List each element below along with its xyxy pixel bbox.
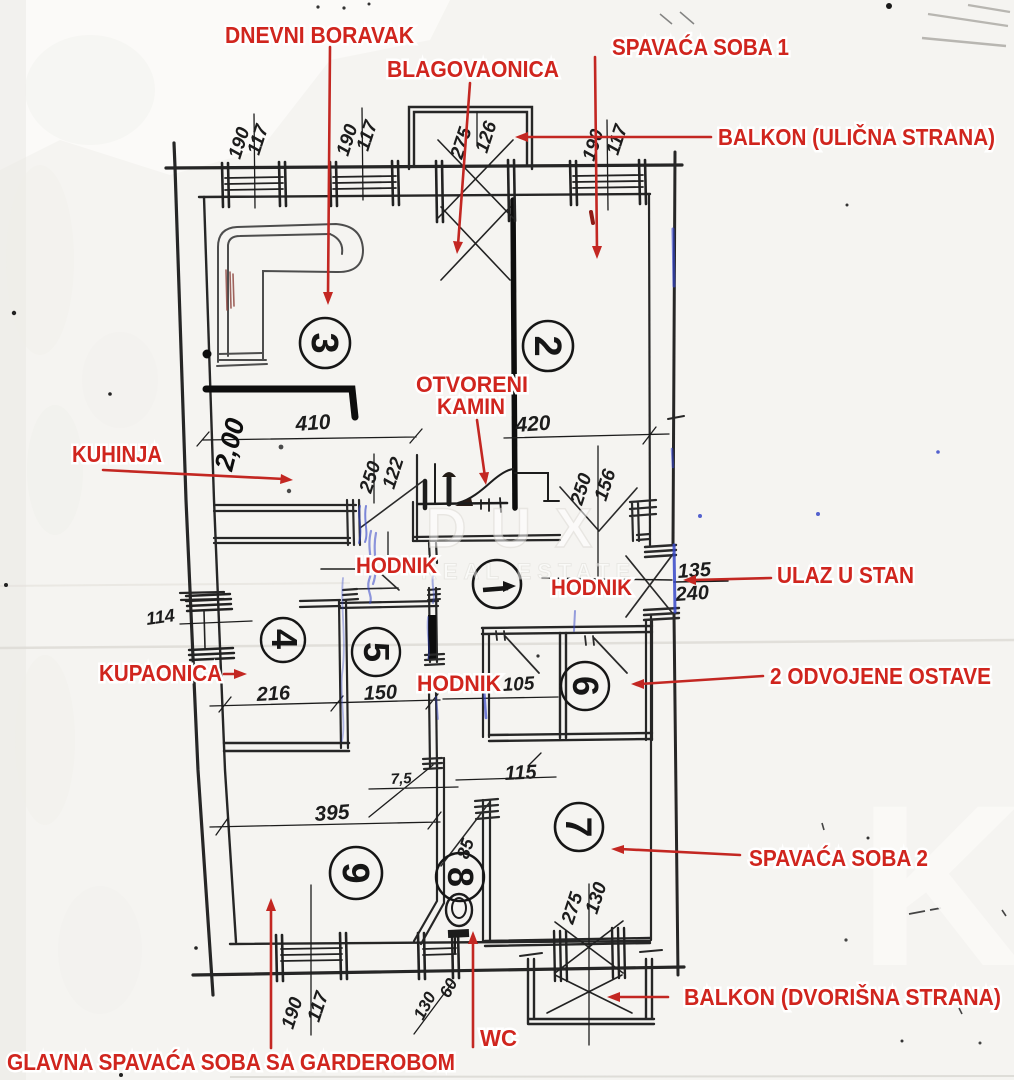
svg-text:9: 9 (334, 862, 376, 883)
svg-text:395: 395 (314, 801, 351, 826)
svg-text:ULAZ U STAN: ULAZ U STAN (777, 562, 914, 588)
svg-text:KAMIN: KAMIN (437, 394, 505, 419)
svg-text:105: 105 (502, 673, 535, 696)
svg-text:SPAVAĆA SOBA 1: SPAVAĆA SOBA 1 (612, 33, 789, 60)
svg-text:240: 240 (674, 582, 710, 606)
svg-text:DUX: DUX (426, 496, 616, 559)
svg-text:K: K (858, 757, 1014, 1014)
svg-text:5: 5 (356, 642, 397, 662)
svg-text:BALKON (ULIČNA STRANA): BALKON (ULIČNA STRANA) (718, 123, 995, 150)
svg-text:HODNIK: HODNIK (417, 671, 501, 696)
svg-text:HODNIK: HODNIK (356, 553, 437, 578)
svg-text:6: 6 (565, 676, 606, 696)
svg-text:KUPAONICA: KUPAONICA (99, 660, 222, 686)
svg-text:8: 8 (440, 867, 481, 887)
svg-text:GLAVNA SPAVAĆA SOBA SA GARDERO: GLAVNA SPAVAĆA SOBA SA GARDEROBOM (7, 1048, 455, 1075)
svg-text:BLAGOVAONICA: BLAGOVAONICA (387, 56, 559, 82)
svg-text:BALKON (DVORIŠNA STRANA): BALKON (DVORIŠNA STRANA) (684, 983, 1001, 1010)
svg-text:3: 3 (303, 332, 345, 353)
svg-text:WC: WC (480, 1025, 517, 1051)
svg-text:420: 420 (514, 412, 552, 437)
svg-text:150: 150 (363, 681, 397, 705)
svg-text:216: 216 (255, 682, 291, 706)
svg-text:4: 4 (264, 629, 305, 649)
svg-text:KUHINJA: KUHINJA (72, 441, 162, 467)
svg-text:2 ODVOJENE OSTAVE: 2 ODVOJENE OSTAVE (770, 663, 991, 689)
svg-text:7,5: 7,5 (390, 770, 412, 788)
svg-text:SPAVAĆA SOBA 2: SPAVAĆA SOBA 2 (749, 844, 928, 871)
svg-text:DNEVNI BORAVAK: DNEVNI BORAVAK (225, 22, 414, 48)
svg-text:410: 410 (294, 411, 332, 436)
svg-text:115: 115 (504, 761, 538, 785)
svg-text:114: 114 (145, 605, 176, 629)
svg-text:7: 7 (558, 817, 599, 838)
svg-text:HODNIK: HODNIK (551, 575, 632, 600)
svg-text:2: 2 (526, 335, 568, 356)
